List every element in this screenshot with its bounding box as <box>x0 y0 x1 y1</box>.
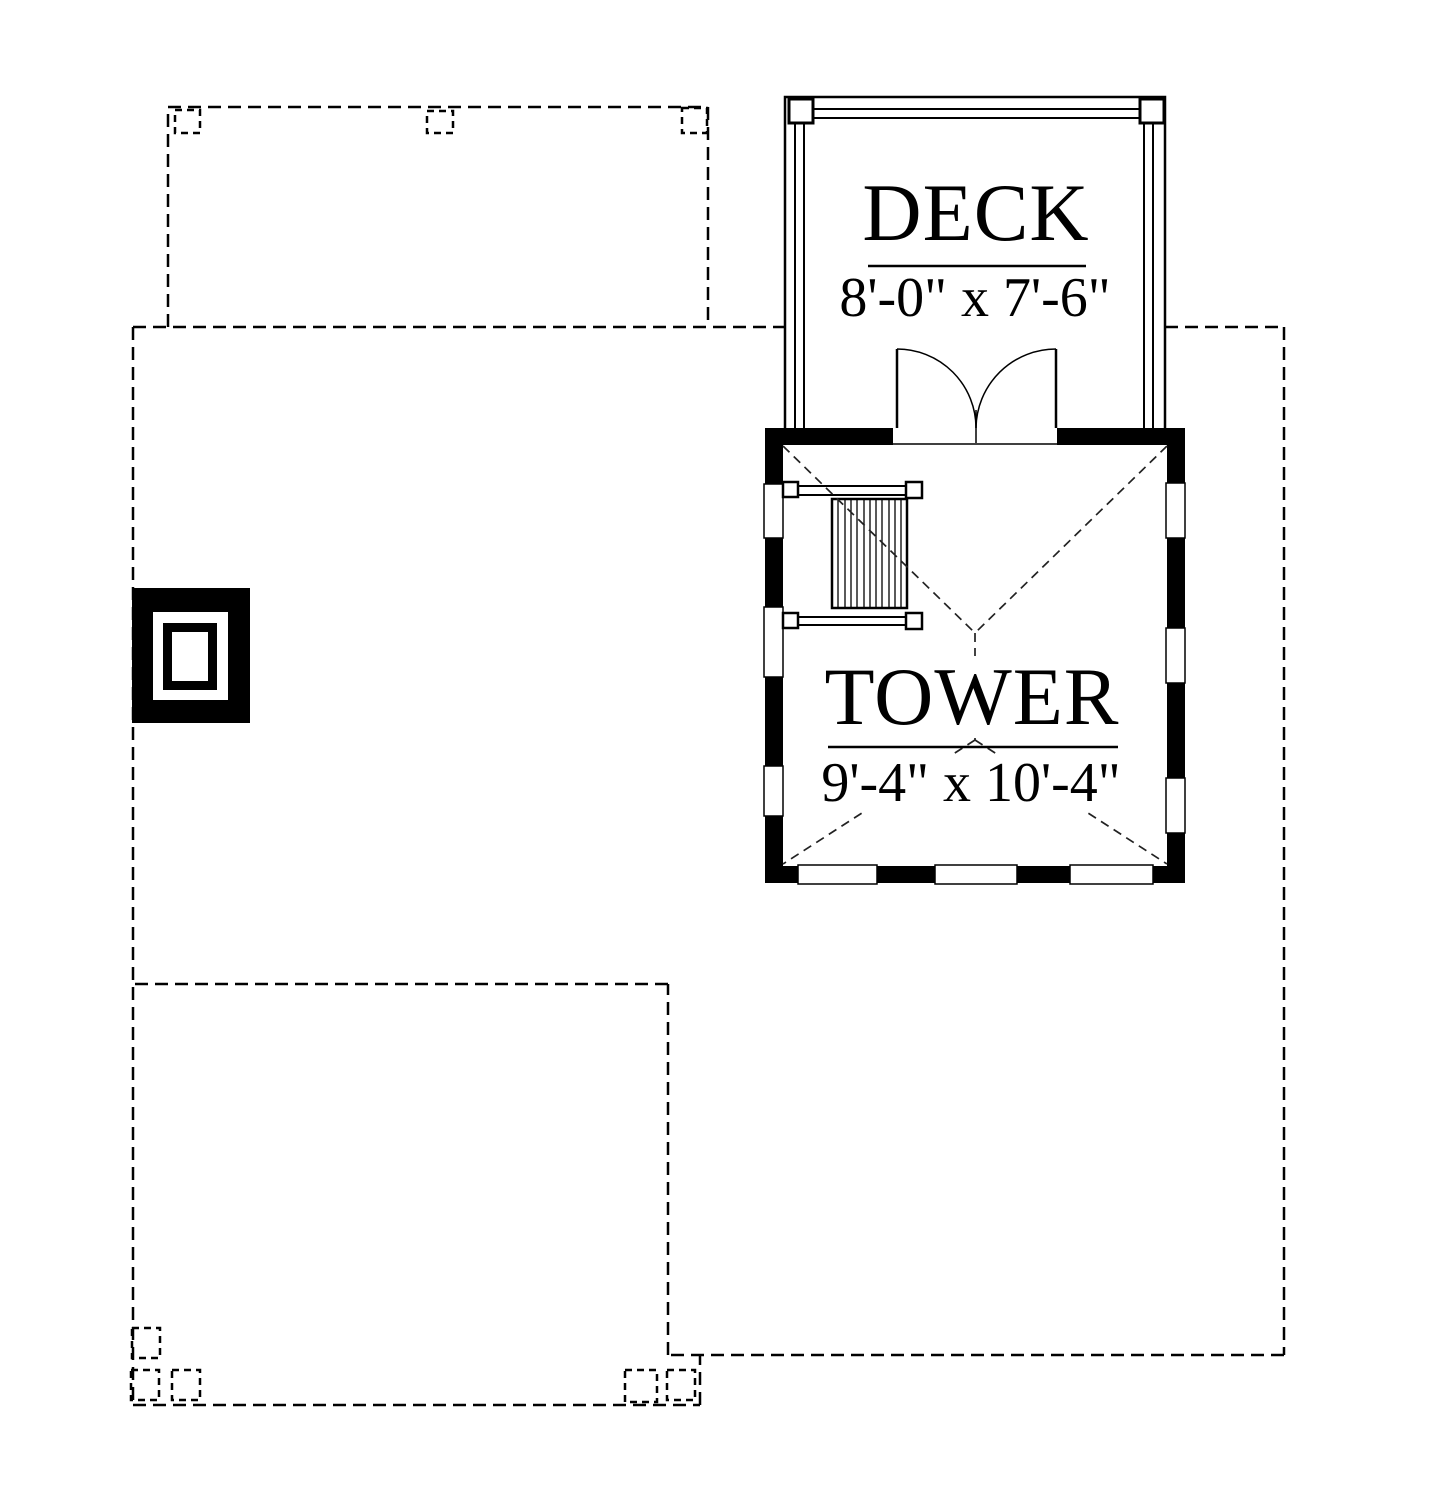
deck-dimensions: 8'-0" x 7'-6" <box>833 270 1116 326</box>
window <box>764 607 783 677</box>
window <box>764 484 783 538</box>
deck-corner-post <box>789 99 813 123</box>
tower-dimensions: 9'-4" x 10'-4" <box>815 755 1126 811</box>
roof-post <box>131 1370 159 1400</box>
window <box>1070 865 1153 884</box>
stair-newel <box>783 482 798 497</box>
window <box>1166 483 1185 538</box>
deck-label: DECK <box>856 172 1095 254</box>
roof-post <box>682 108 707 133</box>
window <box>1166 628 1185 683</box>
deck-railing <box>785 97 1165 428</box>
chimney <box>132 588 250 723</box>
deck-railing-outer <box>785 97 1165 428</box>
roof-post <box>175 110 200 133</box>
floor-plan: DECK 8'-0" x 7'-6" TOWER 9'-4" x 10'-4" <box>0 0 1436 1488</box>
door-swing-arc <box>976 349 1056 428</box>
window <box>764 766 783 816</box>
door-swing-arc <box>897 349 976 428</box>
deck-corner-post <box>1140 99 1164 123</box>
stair-newel <box>906 482 922 498</box>
roof-post <box>625 1370 657 1402</box>
stair-newel <box>783 613 798 628</box>
hip-line <box>975 446 1167 633</box>
window <box>798 865 877 884</box>
roof-post <box>667 1370 695 1400</box>
stairs <box>783 482 922 629</box>
window <box>1166 778 1185 833</box>
french-doors <box>893 349 1057 444</box>
roof-outline-upper-left <box>168 107 708 327</box>
stair-newel <box>906 613 922 629</box>
floor-plan-linework <box>0 0 1436 1488</box>
tower-wall-top-right <box>1057 428 1185 445</box>
roof-post-group <box>131 108 707 1402</box>
window <box>935 865 1017 884</box>
roof-post <box>132 1328 160 1358</box>
tower-label: TOWER <box>818 656 1125 738</box>
chimney-flue <box>172 632 208 681</box>
roof-post <box>427 111 453 133</box>
tower-wall-top-left <box>765 428 893 445</box>
roof-post <box>172 1370 200 1400</box>
